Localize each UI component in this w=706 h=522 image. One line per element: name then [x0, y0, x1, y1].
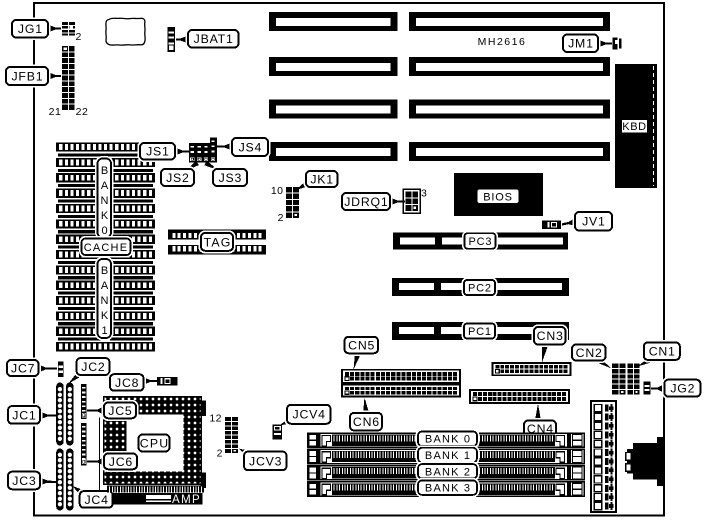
svg-text:3: 3 — [421, 188, 427, 200]
svg-text:CN5: CN5 — [348, 338, 375, 352]
svg-text:CN1: CN1 — [649, 345, 676, 359]
svg-text:A: A — [101, 180, 109, 192]
svg-text:TAG: TAG — [204, 235, 232, 249]
svg-text:N: N — [101, 295, 109, 307]
svg-text:JBAT1: JBAT1 — [194, 32, 234, 46]
svg-text:A: A — [101, 280, 109, 292]
svg-text:10: 10 — [271, 185, 284, 197]
svg-text:JG1: JG1 — [18, 22, 43, 36]
svg-text:JFB1: JFB1 — [11, 69, 43, 83]
svg-text:JS2: JS2 — [166, 171, 190, 185]
svg-text:CPU: CPU — [140, 436, 170, 450]
svg-text:AMP: AMP — [172, 494, 201, 506]
svg-text:JCV4: JCV4 — [293, 408, 326, 422]
svg-text:BANK 1: BANK 1 — [425, 450, 471, 462]
svg-text:BANK 0: BANK 0 — [425, 434, 471, 446]
svg-text:JG2: JG2 — [670, 382, 695, 396]
svg-text:JM1: JM1 — [568, 37, 594, 51]
svg-text:JS4: JS4 — [239, 140, 263, 154]
svg-text:CN2: CN2 — [576, 346, 603, 360]
svg-text:CACHE: CACHE — [84, 242, 129, 254]
svg-text:JC3: JC3 — [12, 474, 36, 488]
svg-text:B: B — [101, 165, 108, 177]
svg-text:JCV3: JCV3 — [249, 454, 282, 468]
svg-text:BANK 3: BANK 3 — [425, 483, 471, 495]
svg-text:JV1: JV1 — [582, 215, 606, 229]
svg-text:K: K — [101, 210, 109, 222]
svg-text:CN3: CN3 — [537, 329, 564, 343]
svg-text:JS3: JS3 — [219, 171, 243, 185]
svg-text:PC2: PC2 — [468, 282, 492, 294]
svg-text:JC6: JC6 — [109, 455, 133, 469]
svg-text:22: 22 — [76, 106, 89, 118]
svg-text:0: 0 — [101, 225, 107, 237]
svg-text:K: K — [101, 310, 109, 322]
svg-text:CN6: CN6 — [353, 415, 380, 429]
svg-text:BIOS: BIOS — [483, 191, 513, 203]
svg-text:MH2616: MH2616 — [478, 36, 527, 48]
svg-text:PC3: PC3 — [468, 236, 492, 248]
svg-text:1: 1 — [101, 325, 107, 337]
svg-text:JS1: JS1 — [146, 145, 170, 159]
svg-text:N: N — [101, 195, 109, 207]
svg-text:21: 21 — [49, 106, 62, 118]
svg-text:JC7: JC7 — [11, 361, 35, 375]
svg-text:JC5: JC5 — [108, 404, 132, 418]
svg-text:B: B — [101, 265, 108, 277]
svg-text:2: 2 — [278, 212, 284, 224]
svg-text:JK1: JK1 — [310, 172, 334, 186]
svg-text:PC1: PC1 — [468, 326, 492, 338]
svg-text:KBD: KBD — [622, 121, 646, 133]
svg-text:JC1: JC1 — [12, 408, 36, 422]
svg-text:JC2: JC2 — [81, 360, 105, 374]
svg-text:12: 12 — [209, 413, 222, 425]
svg-text:2: 2 — [76, 31, 82, 43]
svg-text:BANK 2: BANK 2 — [425, 466, 471, 478]
svg-text:2: 2 — [217, 448, 223, 460]
svg-text:JC4: JC4 — [84, 493, 108, 507]
svg-text:JC8: JC8 — [115, 376, 139, 390]
svg-text:JDRQ1: JDRQ1 — [344, 195, 388, 209]
